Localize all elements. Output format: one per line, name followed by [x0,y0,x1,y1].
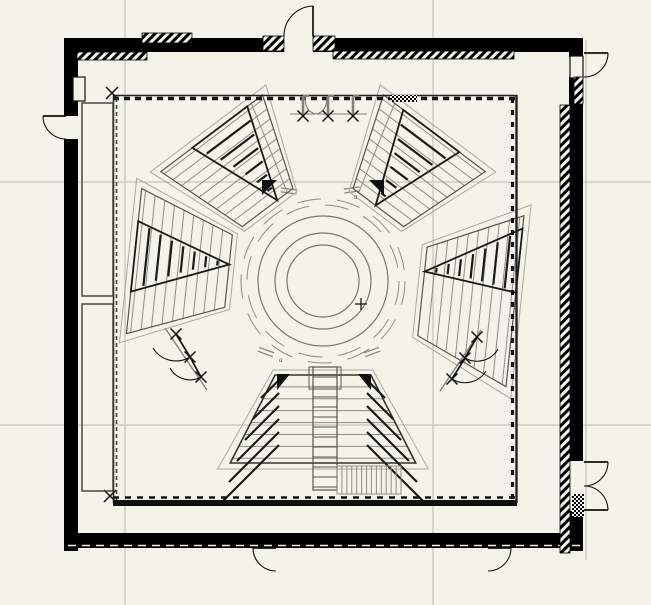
tiny-label: a [354,193,358,201]
wall-right-top [569,38,583,57]
tiny-label: a [279,356,283,364]
cad-viewport[interactable]: aa [0,0,651,605]
wall-right-main [569,77,583,461]
floorplan-drawing[interactable]: aa [0,0,651,605]
wall-left-lower [64,139,78,551]
canvas-background [0,0,651,605]
wall-top-right [313,38,583,52]
